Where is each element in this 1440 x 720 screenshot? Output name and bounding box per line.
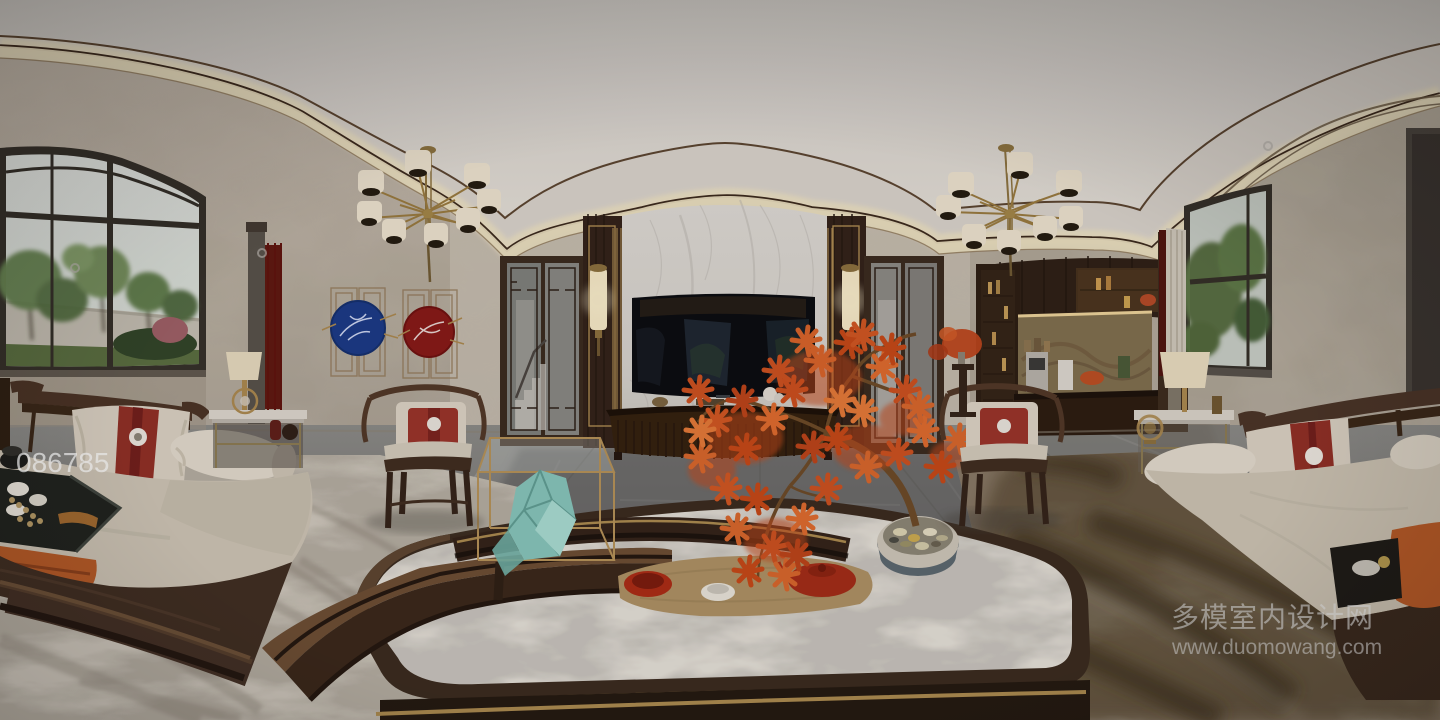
- svg-text:多模室内设计网: 多模室内设计网: [1171, 602, 1374, 633]
- svg-text:086785: 086785: [16, 447, 109, 478]
- svg-text:www.duomowang.com: www.duomowang.com: [1171, 636, 1382, 659]
